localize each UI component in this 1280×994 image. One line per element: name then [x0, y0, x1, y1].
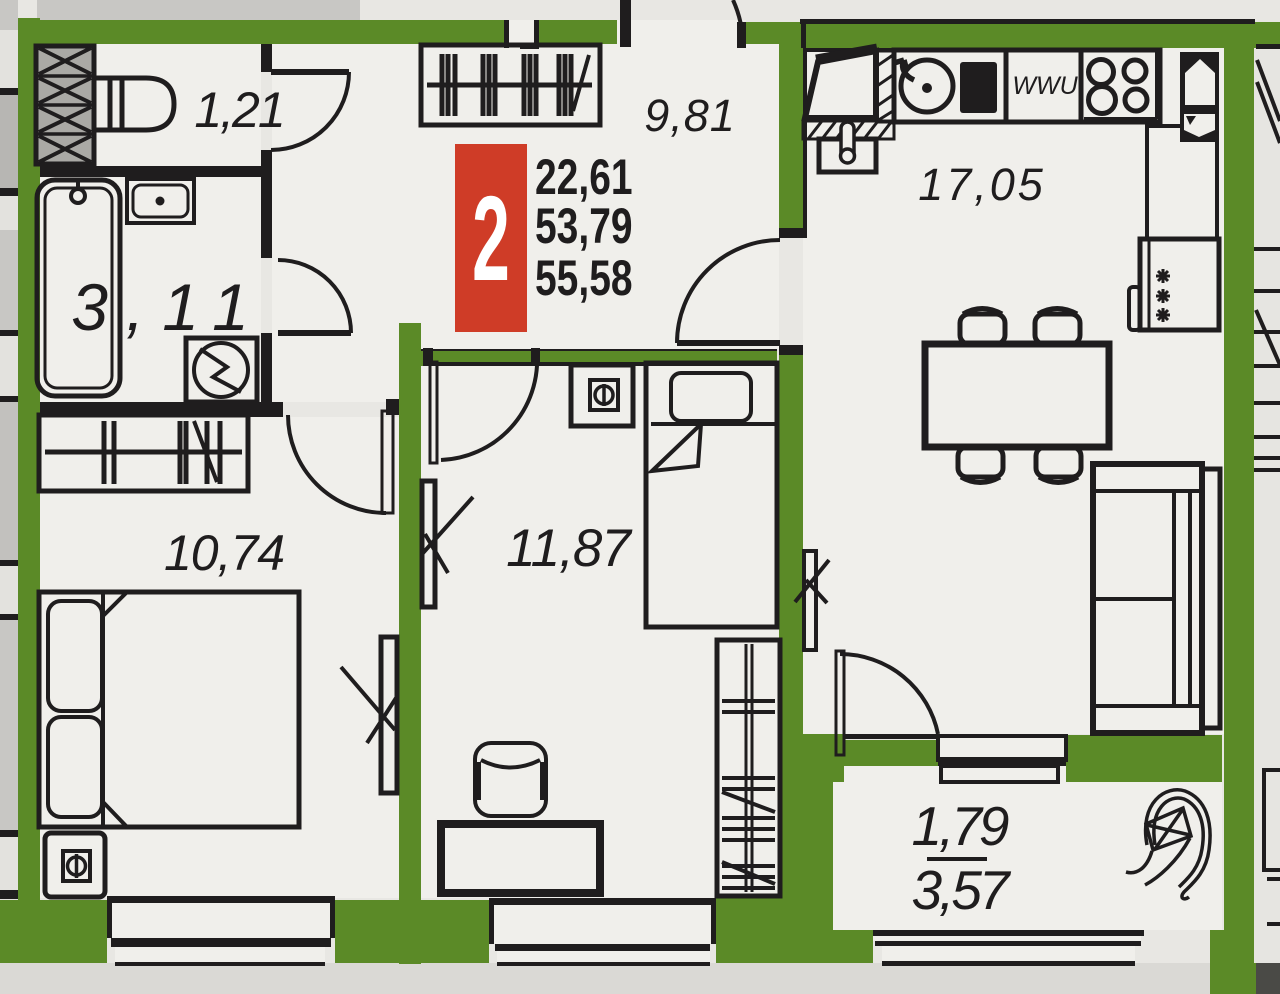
svg-text:2: 2	[472, 170, 510, 306]
svg-text:1,79: 1,79	[911, 795, 1008, 857]
svg-text:1,21: 1,21	[194, 82, 283, 138]
svg-text:3,11: 3,11	[71, 270, 267, 344]
svg-text:55,58: 55,58	[535, 249, 633, 306]
svg-text:17,05: 17,05	[918, 159, 1046, 210]
svg-text:53,79: 53,79	[535, 197, 633, 254]
svg-text:11,87: 11,87	[506, 519, 633, 578]
svg-text:WWU: WWU	[1012, 72, 1078, 100]
svg-text:9,81: 9,81	[644, 90, 736, 141]
svg-text:3,57: 3,57	[911, 859, 1011, 921]
svg-text:10,74: 10,74	[164, 525, 284, 581]
